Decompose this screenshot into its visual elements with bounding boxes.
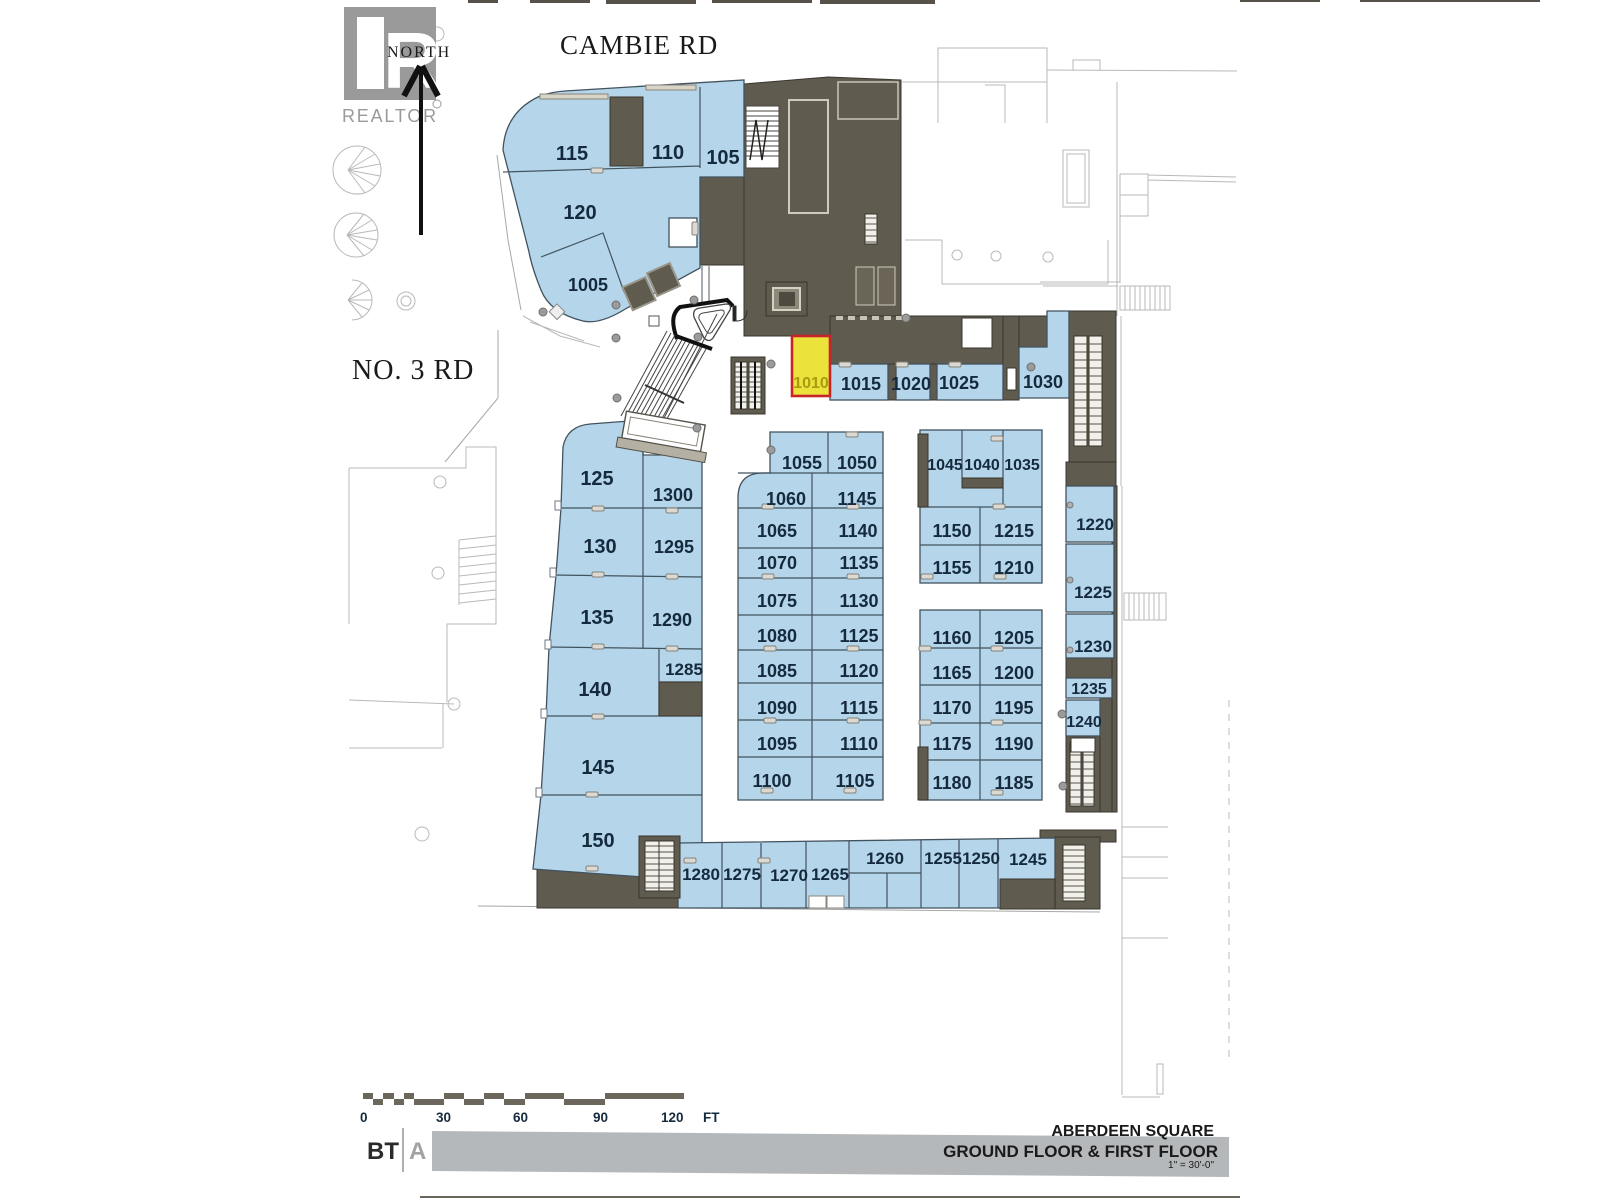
svg-text:150: 150 [581,830,614,852]
svg-text:1025: 1025 [939,373,979,393]
svg-text:1175: 1175 [932,734,971,754]
svg-text:1055: 1055 [782,453,822,473]
svg-text:1005: 1005 [568,275,608,295]
svg-text:90: 90 [593,1110,608,1125]
svg-text:1235: 1235 [1071,681,1107,698]
svg-text:1065: 1065 [757,521,797,541]
svg-text:1200: 1200 [994,663,1034,683]
svg-text:1285: 1285 [665,660,703,679]
svg-text:1155: 1155 [932,558,971,578]
svg-text:1130: 1130 [839,591,878,611]
svg-text:105: 105 [706,147,739,169]
svg-text:BT: BT [367,1138,399,1165]
svg-text:1085: 1085 [757,661,797,681]
svg-text:REALTOR: REALTOR [342,106,438,126]
svg-text:1040: 1040 [964,457,1000,474]
svg-text:1135: 1135 [839,553,878,573]
svg-text:1220: 1220 [1076,515,1114,534]
svg-text:1110: 1110 [840,734,878,754]
svg-text:1280: 1280 [682,865,720,884]
svg-text:ABERDEEN SQUARE: ABERDEEN SQUARE [1051,1123,1214,1140]
svg-text:120: 120 [661,1110,684,1125]
svg-text:30: 30 [436,1110,451,1125]
svg-text:60: 60 [513,1110,528,1125]
svg-text:1120: 1120 [839,661,878,681]
svg-text:1030: 1030 [1023,372,1063,392]
svg-text:130: 130 [583,536,616,558]
svg-text:1095: 1095 [757,734,797,754]
svg-text:125: 125 [580,468,613,490]
svg-text:1270: 1270 [770,866,808,885]
svg-text:NORTH: NORTH [387,44,451,61]
svg-text:GROUND FLOOR & FIRST FLOOR: GROUND FLOOR & FIRST FLOOR [943,1142,1218,1161]
svg-text:1035: 1035 [1004,457,1040,474]
svg-text:1140: 1140 [838,521,877,541]
svg-text:NO. 3 RD: NO. 3 RD [352,355,474,386]
svg-text:1060: 1060 [766,489,806,509]
svg-text:1210: 1210 [994,558,1034,578]
svg-text:145: 145 [581,757,614,779]
svg-text:140: 140 [578,679,611,701]
svg-text:1225: 1225 [1074,583,1112,602]
svg-text:1050: 1050 [837,453,877,473]
svg-text:0: 0 [360,1110,368,1125]
svg-text:1185: 1185 [994,773,1033,793]
svg-text:1190: 1190 [994,734,1033,754]
svg-text:110: 110 [652,142,684,164]
svg-text:1195: 1195 [994,698,1033,718]
svg-text:1215: 1215 [994,521,1034,541]
svg-text:1015: 1015 [841,374,881,394]
svg-text:1180: 1180 [932,773,971,793]
svg-text:1245: 1245 [1009,850,1047,869]
svg-text:FT: FT [703,1110,720,1125]
svg-text:120: 120 [563,202,596,224]
svg-text:1150: 1150 [932,521,971,541]
svg-text:1255: 1255 [924,849,962,868]
svg-text:1260: 1260 [866,849,904,868]
svg-text:1165: 1165 [932,663,971,683]
svg-text:1145: 1145 [837,489,876,509]
svg-text:1125: 1125 [839,626,878,646]
svg-text:1080: 1080 [757,626,797,646]
svg-text:1105: 1105 [835,771,874,791]
svg-text:1265: 1265 [811,865,849,884]
svg-text:1295: 1295 [654,537,694,557]
svg-text:1020: 1020 [891,374,931,394]
svg-text:1240: 1240 [1066,714,1102,731]
svg-text:1230: 1230 [1074,637,1112,656]
svg-text:1250: 1250 [962,849,1000,868]
svg-text:1045: 1045 [927,457,963,474]
svg-text:1160: 1160 [932,628,971,648]
svg-text:CAMBIE RD: CAMBIE RD [560,30,718,60]
svg-text:A: A [409,1138,426,1165]
svg-text:1100: 1100 [752,771,791,791]
svg-text:115: 115 [556,143,588,165]
svg-text:1010: 1010 [793,375,829,392]
svg-text:1115: 1115 [840,698,878,718]
svg-text:1170: 1170 [932,698,971,718]
svg-text:1300: 1300 [653,485,693,505]
svg-text:1275: 1275 [723,865,761,884]
svg-text:1290: 1290 [652,610,692,630]
svg-text:1070: 1070 [757,553,797,573]
svg-text:1" = 30'-0": 1" = 30'-0" [1168,1160,1214,1171]
svg-text:135: 135 [580,607,613,629]
svg-text:1090: 1090 [757,698,797,718]
svg-text:1075: 1075 [757,591,797,611]
svg-text:1205: 1205 [994,628,1034,648]
